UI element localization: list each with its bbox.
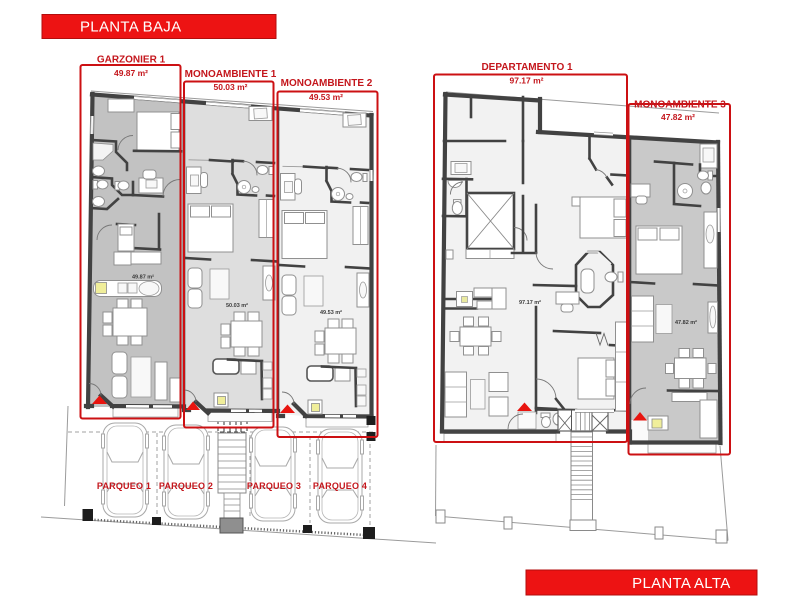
svg-text:PLANTA BAJA: PLANTA BAJA bbox=[80, 19, 181, 36]
svg-text:PARQUEO 1: PARQUEO 1 bbox=[97, 481, 151, 491]
svg-text:PARQUEO 4: PARQUEO 4 bbox=[313, 481, 367, 491]
svg-text:PARQUEO 3: PARQUEO 3 bbox=[247, 481, 301, 491]
svg-text:DEPARTAMENTO 1: DEPARTAMENTO 1 bbox=[481, 62, 573, 73]
svg-text:MONOAMBIENTE 3: MONOAMBIENTE 3 bbox=[634, 100, 726, 111]
svg-text:50.03 m²: 50.03 m² bbox=[226, 302, 248, 309]
svg-text:49.87 m²: 49.87 m² bbox=[114, 68, 148, 78]
svg-text:50.03 m²: 50.03 m² bbox=[213, 82, 247, 92]
svg-text:97.17 m²: 97.17 m² bbox=[509, 76, 543, 86]
svg-text:49.87 m²: 49.87 m² bbox=[132, 274, 154, 281]
svg-text:MONOAMBIENTE 2: MONOAMBIENTE 2 bbox=[281, 78, 373, 89]
svg-text:97.17 m²: 97.17 m² bbox=[519, 299, 541, 306]
svg-text:PARQUEO 2: PARQUEO 2 bbox=[159, 481, 213, 491]
svg-text:49.53 m²: 49.53 m² bbox=[309, 92, 343, 102]
svg-text:GARZONIER 1: GARZONIER 1 bbox=[97, 55, 166, 66]
svg-text:47.82 m²: 47.82 m² bbox=[675, 319, 697, 326]
svg-text:47.82 m²: 47.82 m² bbox=[661, 112, 695, 122]
svg-text:PLANTA ALTA: PLANTA ALTA bbox=[632, 575, 730, 592]
svg-text:49.53 m²: 49.53 m² bbox=[320, 309, 342, 316]
svg-text:MONOAMBIENTE 1: MONOAMBIENTE 1 bbox=[185, 69, 277, 80]
